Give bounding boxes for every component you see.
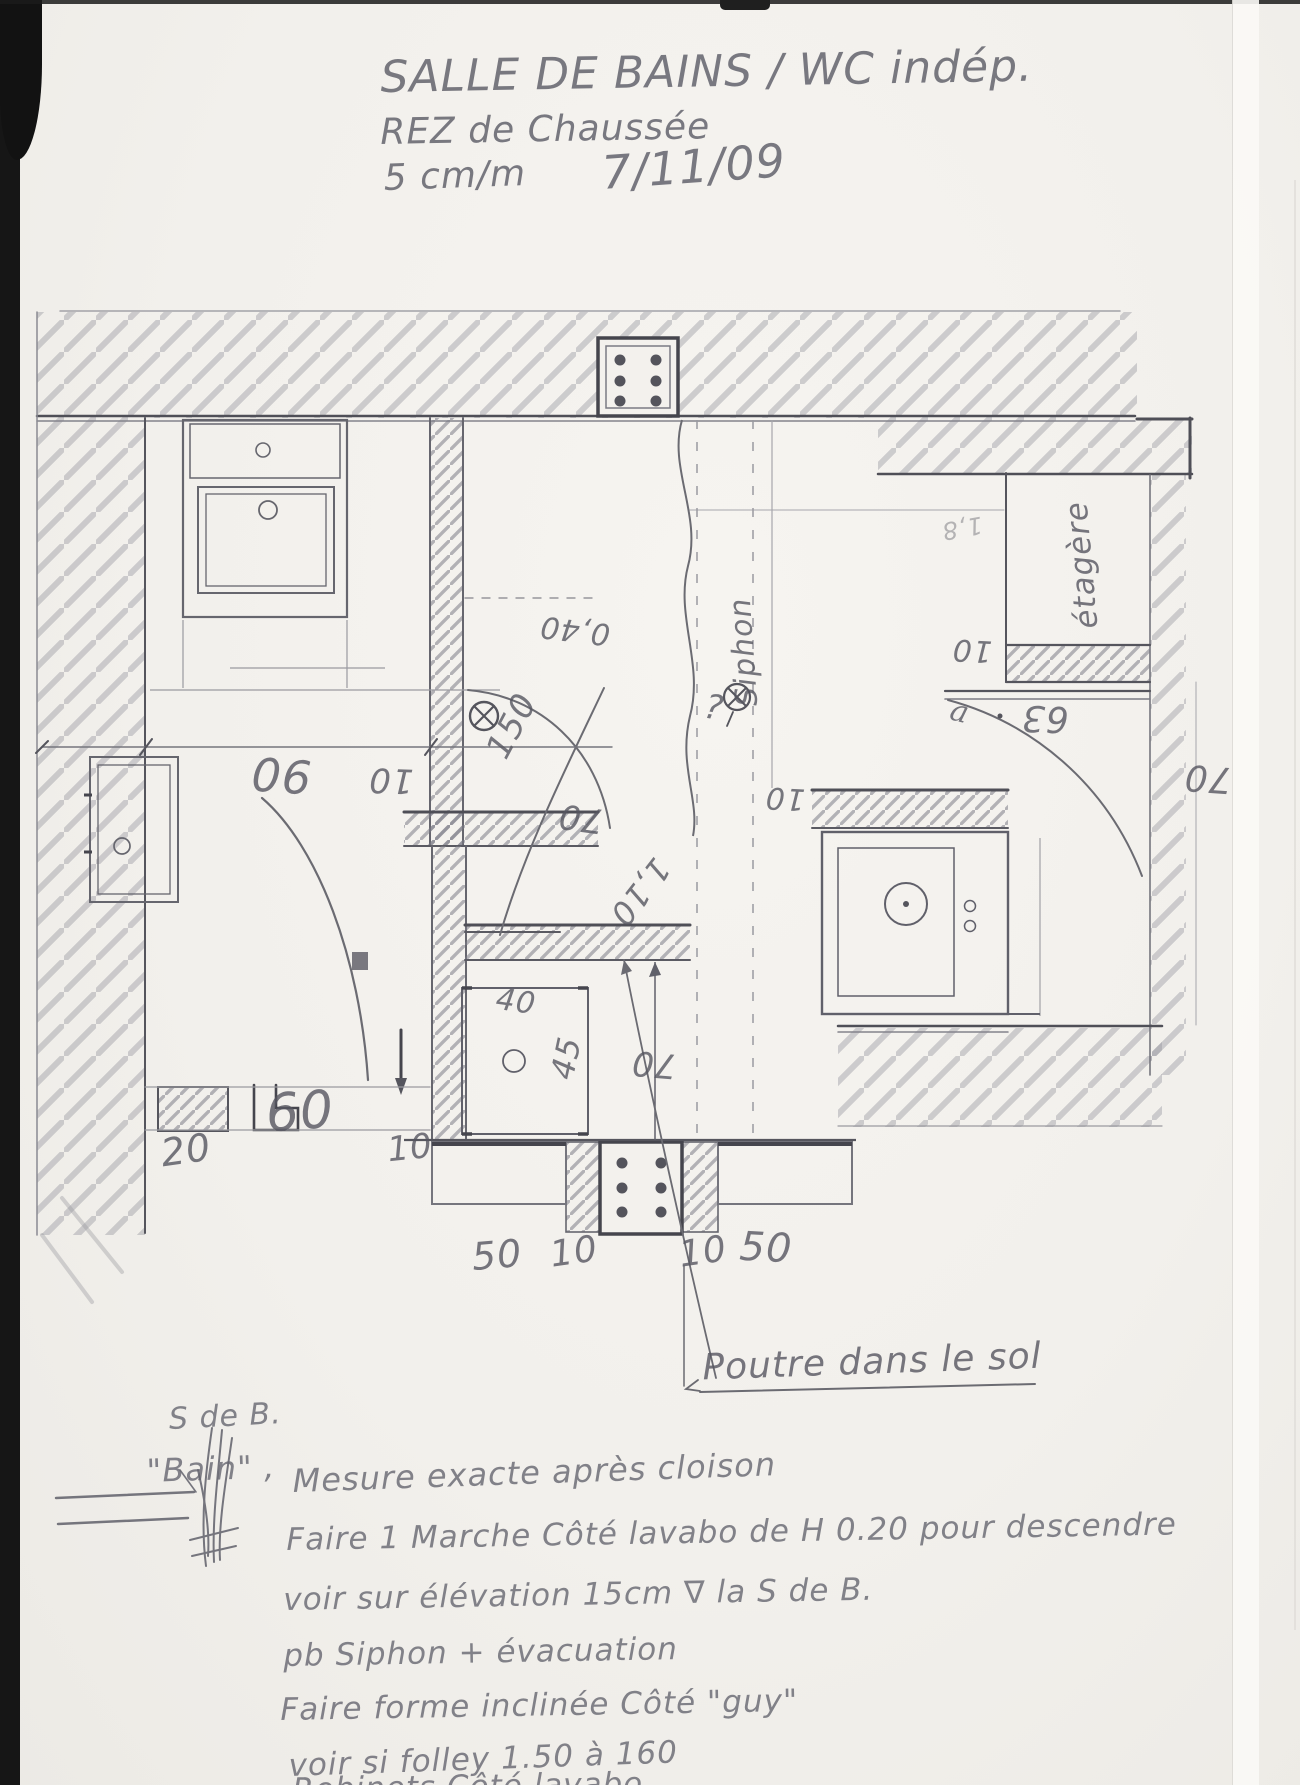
dim-label-10-right: 10 [676,1228,729,1275]
beam-and-pipe-lines [679,420,772,1140]
dim-label-70-door: 70 [556,795,606,841]
siphon-label: Siphon [723,597,766,708]
dim-label-40-basin: 40 [494,982,539,1022]
scan-top-line [0,0,1300,4]
note-bain: "Bain" , [146,1448,276,1490]
dim-label-70-right: 70 [1183,756,1234,800]
dim-label-50-left: 50 [470,1231,524,1279]
scan-right-faint-line [1294,180,1296,1630]
note-s-de-b: S de B. [168,1396,282,1437]
dim-label-90: 90 [249,746,313,804]
scanned-floor-plan-page: SALLE DE BAINS / WC indép. REZ de Chauss… [0,0,1300,1785]
dim-label-10-doorjamb: 10 [385,1126,434,1171]
margin-scribbles [56,1428,238,1566]
dim-label-60: 60 [264,1080,336,1145]
plan-scale: 5 cm/m [383,153,527,199]
scan-top-nub [720,0,770,10]
dim-label-10-corridor: 10 [368,759,415,801]
dim-label-63: 63 [1020,697,1069,740]
note-siphon-evacuation: pb Siphon + évacuation [283,1631,678,1674]
dim-label-70-basin: 70 [630,1042,679,1086]
dim-label-10-closet: 10 [951,631,993,668]
scan-right-strip [1232,0,1259,1785]
right-vanity [822,832,1040,1016]
dim-label-20: 20 [158,1125,214,1176]
scan-left-edge [0,0,20,1785]
dim-label-50-right: 50 [738,1224,793,1273]
dim-label-10-left: 10 [547,1228,600,1275]
dim-label-10-partition: 10 [764,779,806,816]
